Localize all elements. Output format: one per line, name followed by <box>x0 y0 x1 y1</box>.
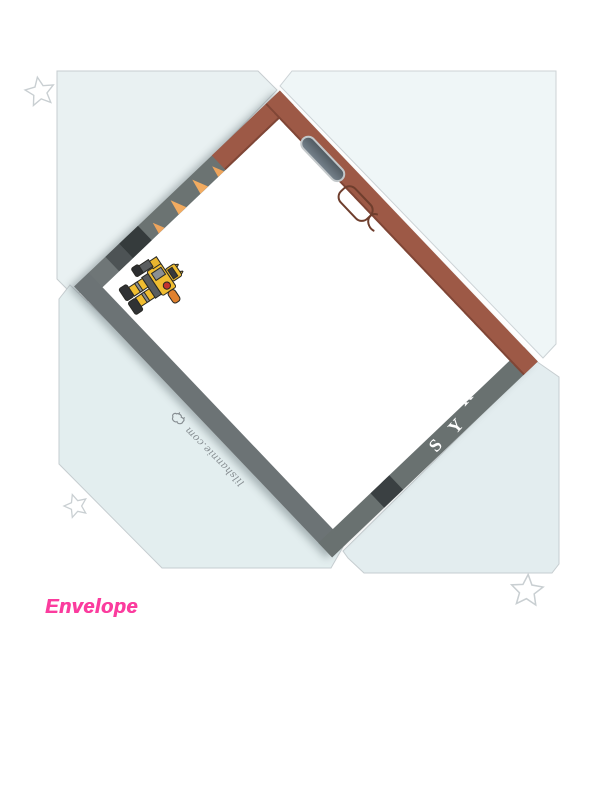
hazard-stripe-icon <box>149 219 165 235</box>
hazard-stripe-icon <box>188 175 208 196</box>
hazard-stripe-icon <box>166 196 186 217</box>
star-icon <box>61 491 89 519</box>
star-icon <box>23 75 56 107</box>
page-title: Envelope <box>45 596 138 619</box>
printable-envelope-page: lilshannie.com R Y S <box>0 0 612 792</box>
edge-letter: R <box>449 382 480 413</box>
star-icon <box>510 573 543 605</box>
